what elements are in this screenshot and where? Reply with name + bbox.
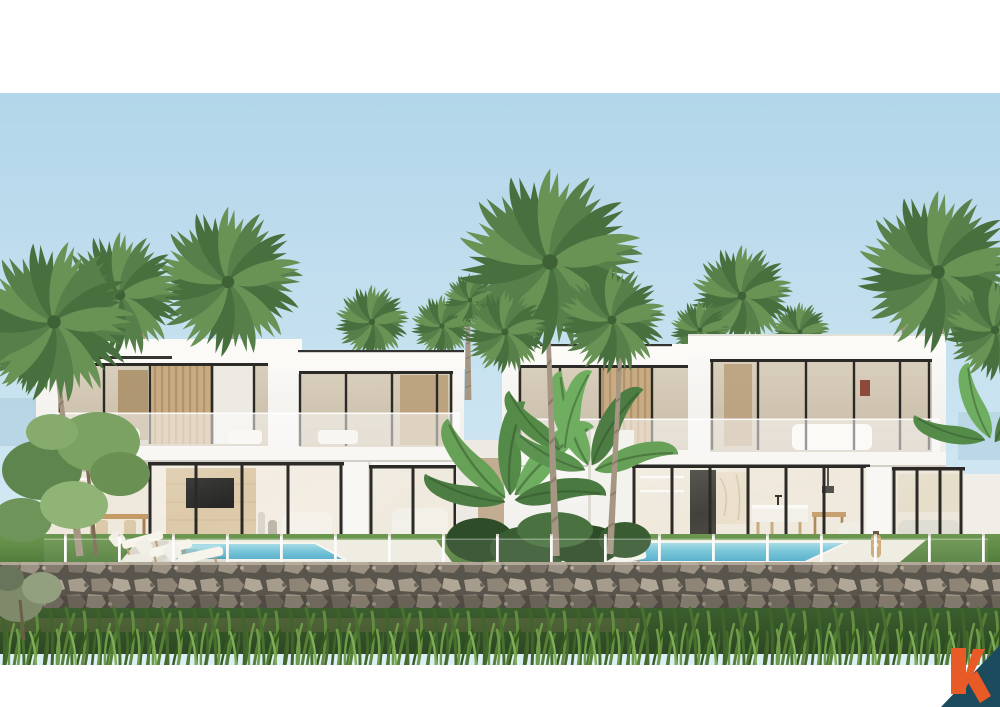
lounge-glazed — [369, 465, 457, 542]
wall-top-course — [0, 562, 1000, 565]
living-room-glazed — [148, 462, 344, 542]
top-white-band — [0, 0, 1000, 93]
bottom-white-band — [0, 665, 1000, 707]
rendered-image — [0, 0, 1000, 707]
fence-posts — [44, 534, 988, 566]
villa-render-scene — [0, 0, 1000, 707]
villa-right-main-roof — [688, 334, 946, 357]
wall-art — [860, 380, 870, 396]
tall-grass-front — [0, 626, 1000, 665]
villa-left-front-roof — [268, 350, 465, 369]
glass-pool-fence — [44, 534, 988, 566]
corner-pillar — [344, 462, 371, 546]
